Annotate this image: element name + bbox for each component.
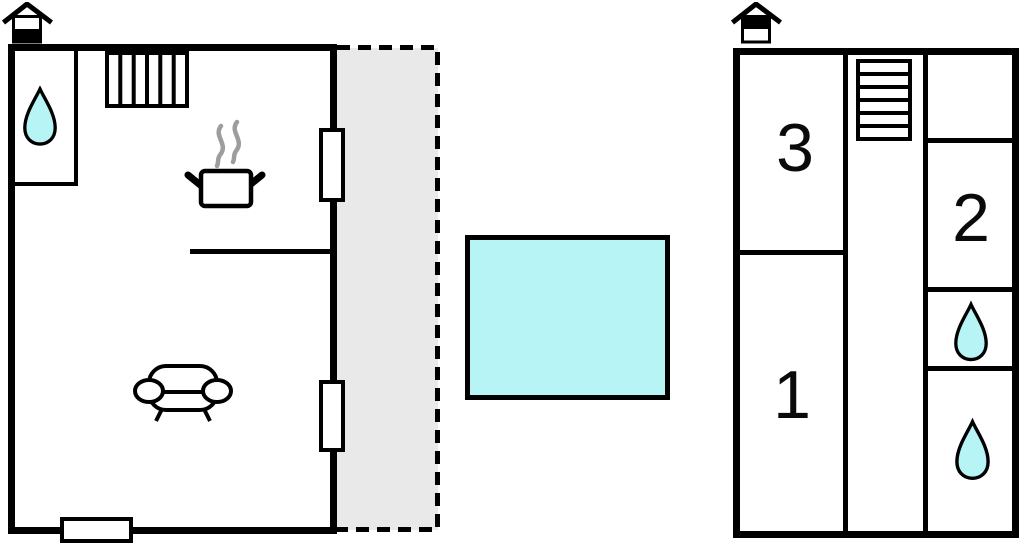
divider-room3-room1	[740, 250, 843, 255]
window-right-upper	[319, 128, 345, 202]
window-right-lower	[319, 380, 345, 452]
divider-below-room2	[928, 287, 1012, 292]
room-label-2: 2	[952, 184, 990, 252]
water-drop-icon	[953, 418, 992, 482]
pool-rectangle	[465, 235, 670, 400]
water-drop-icon	[952, 300, 990, 364]
cooking-pot-icon	[184, 119, 266, 209]
right-plan-wall-right-column	[923, 55, 928, 531]
divider-above-room2	[928, 138, 1012, 143]
room-label-3: 3	[776, 114, 814, 182]
kitchen-living-divider-wall	[190, 249, 330, 254]
room-label-1: 1	[773, 361, 811, 429]
sofa-icon	[131, 361, 235, 423]
window-bottom	[60, 517, 133, 543]
water-drop-icon	[21, 86, 59, 147]
terrace-area	[337, 42, 443, 534]
stairs-icon	[856, 59, 912, 141]
house-ground-floor-icon	[2, 2, 54, 45]
stairs-icon	[105, 51, 189, 108]
floorplan-canvas: 3 1 2	[0, 0, 1024, 545]
house-upper-floor-icon	[731, 2, 783, 45]
right-plan-wall-left-column	[843, 55, 848, 531]
steam-lines	[217, 122, 239, 166]
divider-between-bathrooms	[928, 366, 1012, 371]
